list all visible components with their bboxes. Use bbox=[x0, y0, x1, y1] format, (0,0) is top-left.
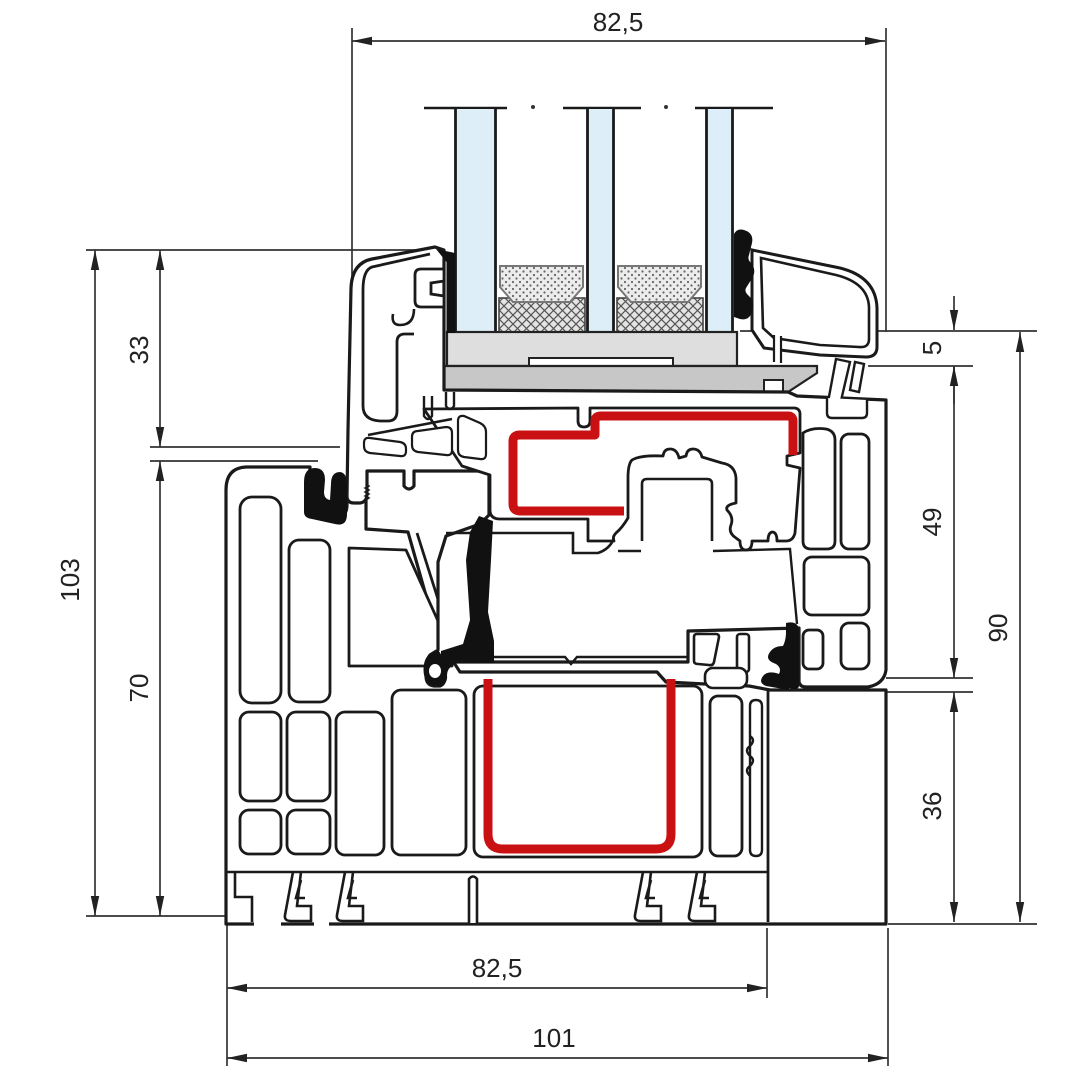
svg-text:90: 90 bbox=[983, 614, 1013, 643]
svg-text:101: 101 bbox=[532, 1023, 575, 1053]
svg-text:33: 33 bbox=[124, 336, 154, 365]
svg-text:70: 70 bbox=[124, 674, 154, 703]
svg-text:82,5: 82,5 bbox=[593, 7, 644, 37]
svg-text:5: 5 bbox=[917, 341, 947, 355]
svg-text:36: 36 bbox=[917, 792, 947, 821]
svg-text:103: 103 bbox=[55, 558, 85, 601]
svg-text:82,5: 82,5 bbox=[472, 953, 523, 983]
svg-text:49: 49 bbox=[917, 508, 947, 537]
